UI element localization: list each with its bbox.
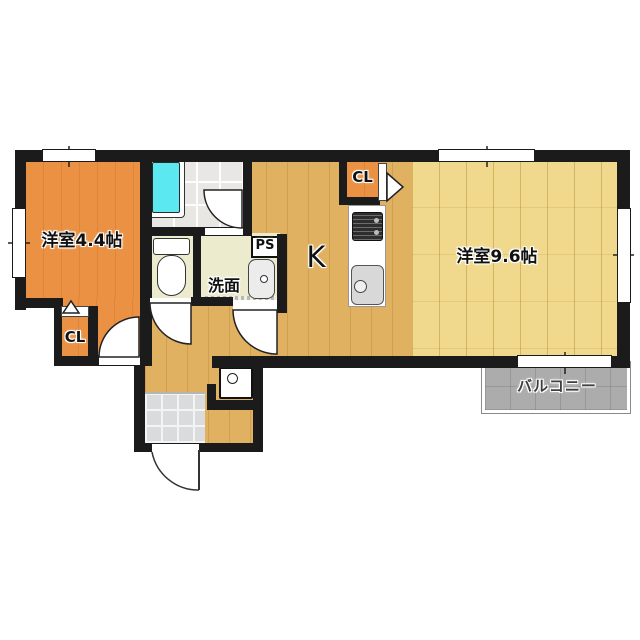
bathtub-water (152, 162, 180, 213)
wall-entrance-right (253, 364, 263, 452)
floor-western-room-left (25, 160, 142, 300)
label-washroom: 洗面 (200, 277, 248, 295)
wall-entrance-left (134, 356, 145, 452)
doorway-toilet (150, 298, 191, 306)
entrance-door-arc (152, 452, 199, 490)
doorway-bathroom (205, 228, 243, 235)
label-closet-kitchen: CL (346, 169, 379, 186)
label-western-room-left: 洋室4.4帖 (22, 232, 142, 251)
wall-bath-right (243, 150, 252, 236)
window-top-left (42, 149, 96, 162)
label-western-room-right: 洋室9.6帖 (437, 248, 557, 267)
kitchen-faucet (354, 280, 367, 293)
washing-pan-drain (227, 373, 238, 384)
wall-room44-right (140, 160, 152, 366)
wall-top (15, 150, 630, 162)
closet-left-door (61, 306, 89, 317)
stove-knob-2 (374, 230, 379, 235)
kitchen-sink (351, 265, 384, 305)
label-kitchen: K (296, 242, 336, 274)
genkan-step-edge (145, 392, 205, 394)
wall-closet-kitchen-b (339, 197, 380, 205)
closet-kitchen-door (378, 163, 387, 201)
window-right (617, 208, 631, 303)
floor-plan-canvas: 洋室4.4帖 洋室9.6帖 K 洗面 PS CL CL バルコニー (0, 0, 640, 640)
wall-toilet-divider (193, 234, 201, 306)
label-closet-left: CL (60, 329, 90, 346)
toilet-tank (153, 238, 190, 255)
label-pipe-shaft: PS (251, 239, 279, 253)
wall-pan-horiz (207, 400, 253, 410)
doorway-room44 (99, 356, 140, 365)
bathtub (147, 157, 185, 218)
window-top-right (438, 149, 535, 162)
washing-machine-pan (219, 367, 253, 399)
floor-genkan-tile (145, 393, 205, 443)
doorway-entrance (152, 444, 199, 452)
balcony-sliding-door (517, 355, 612, 368)
washroom-sink (248, 259, 275, 299)
kitchen-stove (352, 212, 383, 241)
stove-knob-1 (374, 218, 379, 223)
toilet-bowl (157, 255, 186, 296)
label-balcony: バルコニー (493, 378, 621, 395)
washroom-faucet-dot (260, 275, 268, 283)
doorway-washroom (233, 300, 277, 313)
wall-toilet-bottom (191, 297, 233, 306)
